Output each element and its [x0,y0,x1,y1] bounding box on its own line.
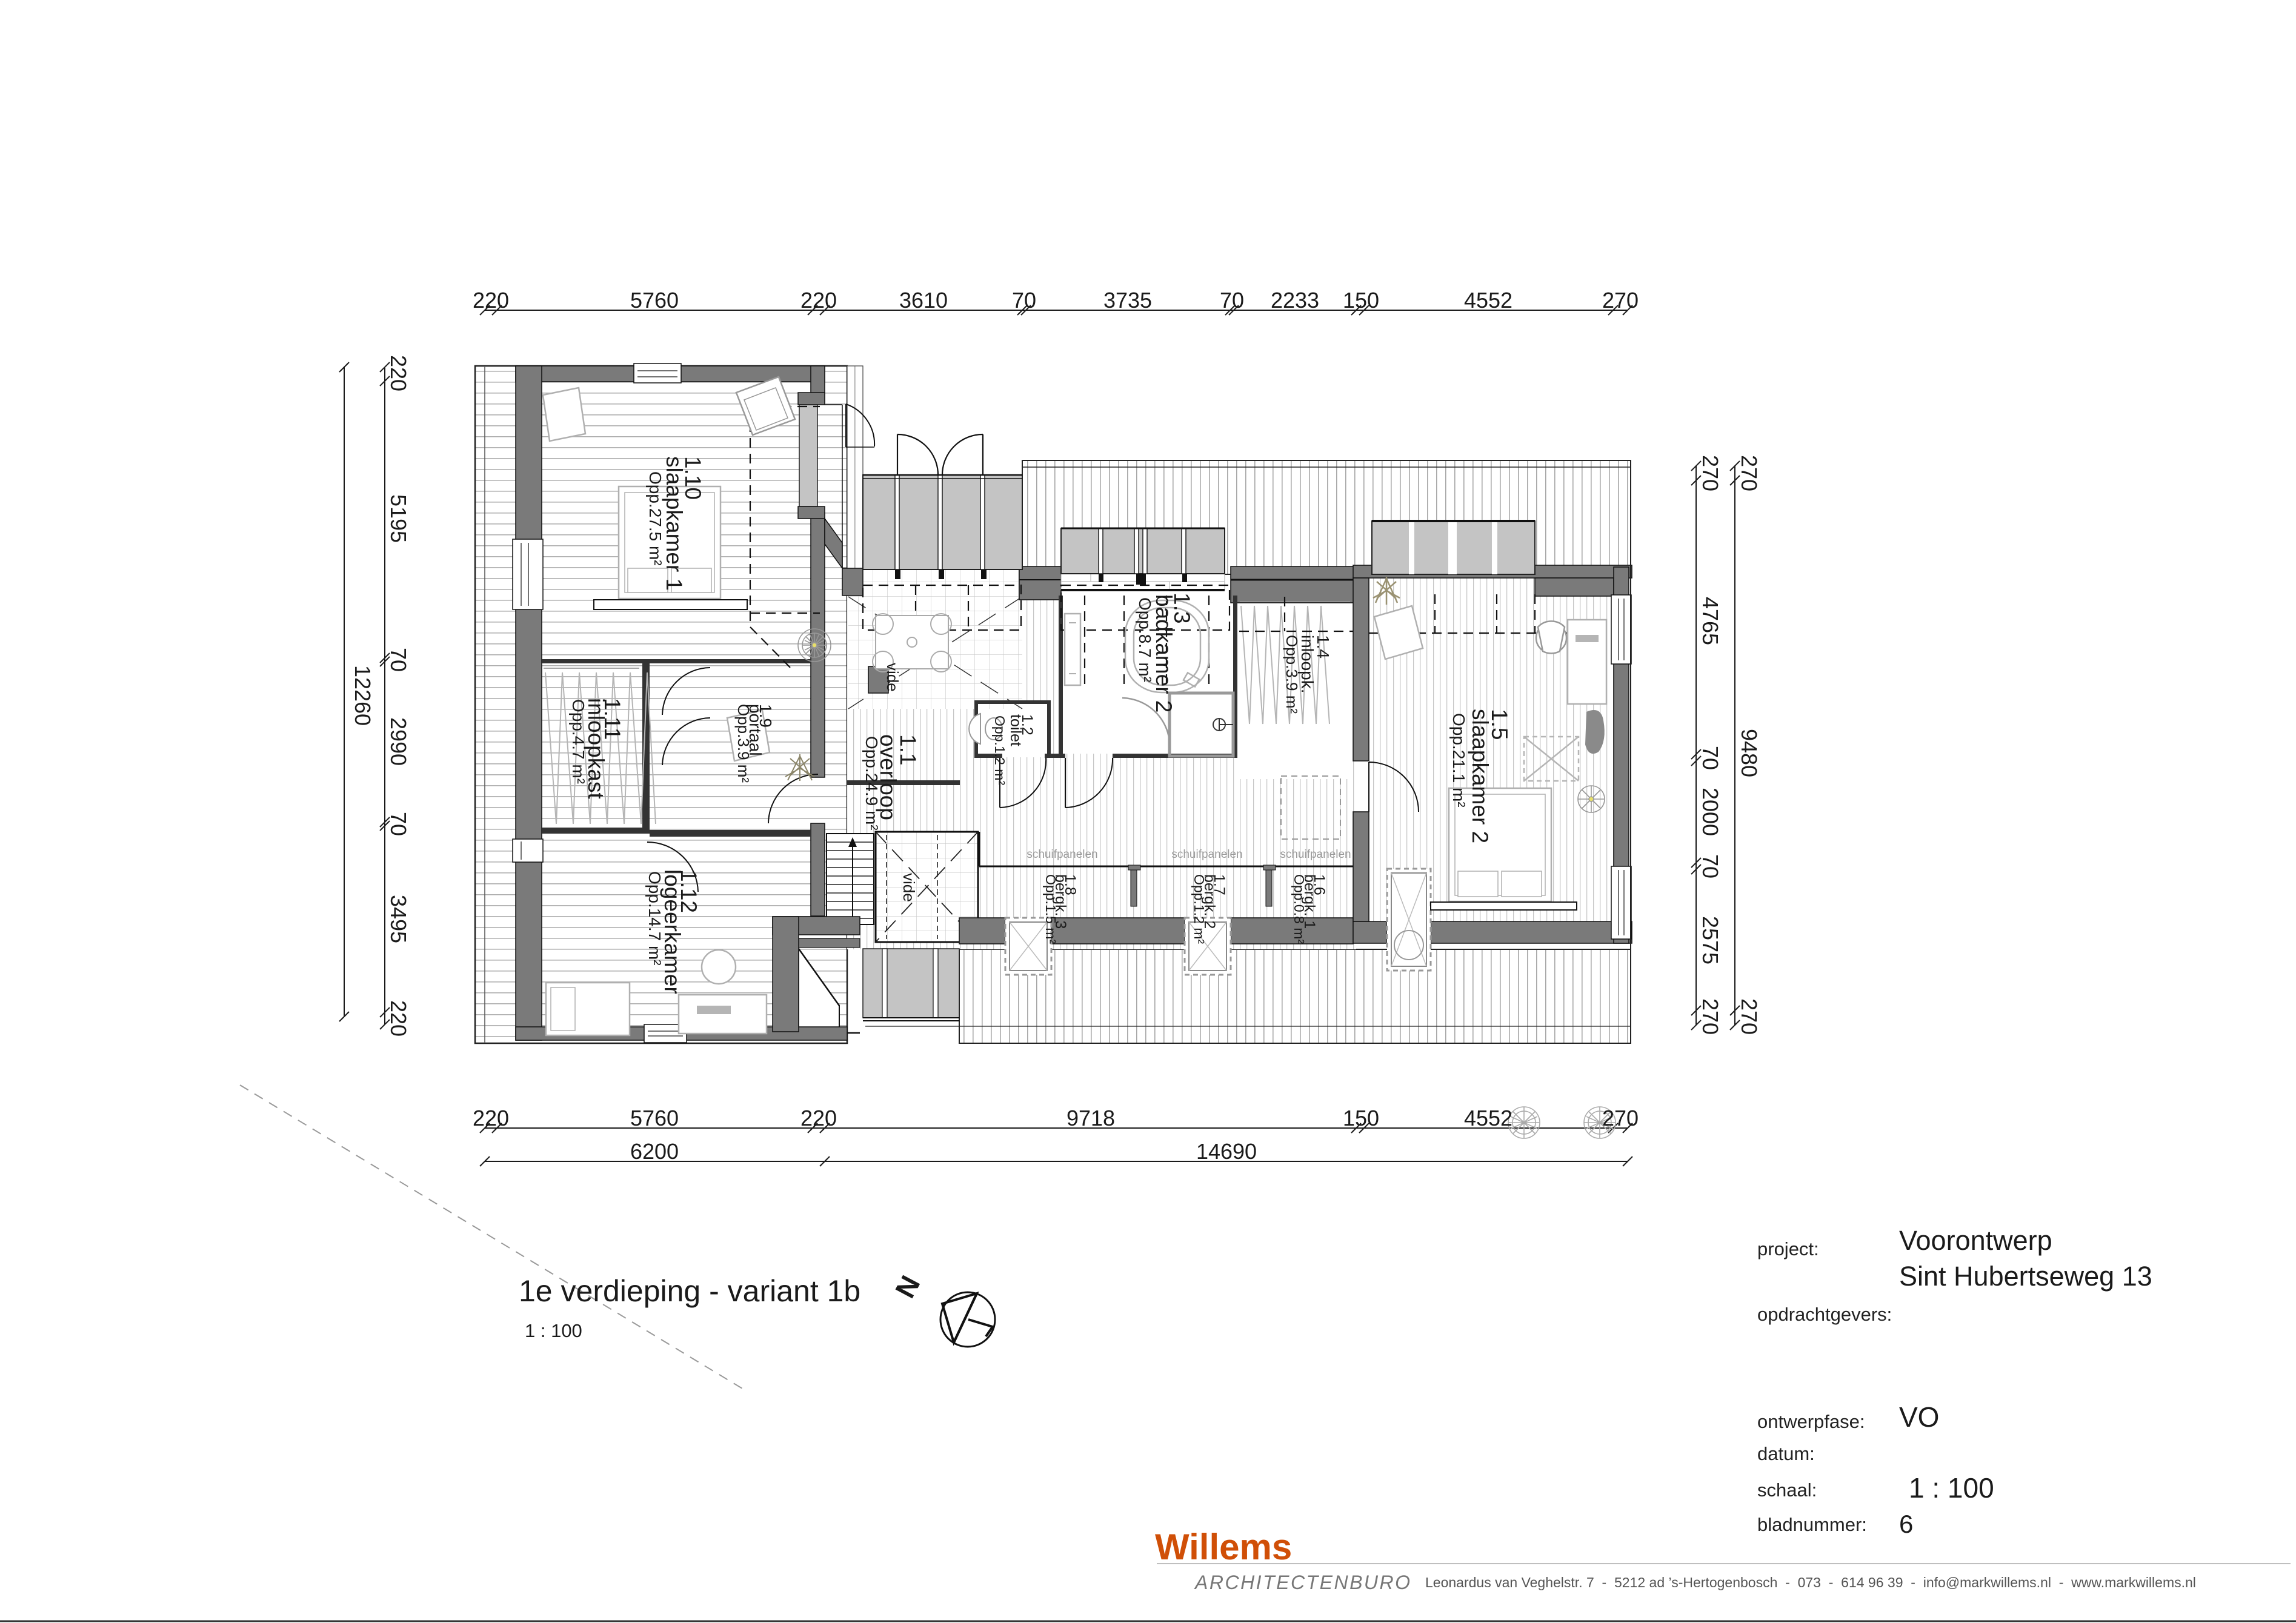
svg-text:Opp.27.5 m²: Opp.27.5 m² [646,471,665,566]
svg-text:9718: 9718 [1066,1106,1115,1130]
svg-text:VO: VO [1899,1401,1939,1433]
svg-text:70: 70 [1012,288,1036,313]
svg-text:1 : 100: 1 : 100 [525,1320,582,1341]
svg-text:Opp.0.8 m²: Opp.0.8 m² [1291,874,1307,944]
svg-text:3495: 3495 [386,895,411,943]
svg-text:14690: 14690 [1196,1139,1257,1164]
svg-text:Opp.3.9 m²: Opp.3.9 m² [1283,635,1301,714]
svg-text:12260: 12260 [350,665,375,726]
svg-text:slaapkamer 2: slaapkamer 2 [1468,709,1492,843]
svg-text:4765: 4765 [1698,597,1723,645]
svg-text:70: 70 [1698,746,1723,770]
svg-text:toilet: toilet [1007,714,1024,746]
svg-text:150: 150 [1343,1106,1379,1130]
svg-text:schuifpanelen: schuifpanelen [1280,848,1351,861]
svg-text:9480: 9480 [1737,729,1762,777]
svg-text:3735: 3735 [1103,288,1152,313]
svg-text:270: 270 [1698,998,1723,1035]
svg-text:70: 70 [1698,854,1723,878]
svg-text:Opp.3.9 m²: Opp.3.9 m² [734,704,753,783]
svg-text:3610: 3610 [899,288,948,313]
svg-text:badkamer 2: badkamer 2 [1151,594,1176,712]
svg-text:270: 270 [1737,998,1762,1035]
svg-text:5760: 5760 [630,288,679,313]
svg-text:6: 6 [1899,1510,1913,1538]
svg-text:1e verdieping - variant 1b: 1e verdieping - variant 1b [519,1274,860,1308]
svg-text:5195: 5195 [386,494,411,543]
svg-text:Opp.1.2 m²: Opp.1.2 m² [1191,874,1207,944]
svg-text:Voorontwerp: Voorontwerp [1899,1225,2052,1256]
svg-text:6200: 6200 [630,1139,679,1164]
svg-text:ARCHITECTENBURO: ARCHITECTENBURO [1194,1572,1412,1593]
svg-text:Sint Hubertseweg 13: Sint Hubertseweg 13 [1899,1261,2152,1292]
svg-text:schaal:: schaal: [1757,1479,1817,1501]
svg-text:4552: 4552 [1464,1106,1512,1130]
svg-text:Opp.24.9 m²: Opp.24.9 m² [862,736,881,831]
svg-text:bladnummer:: bladnummer: [1757,1514,1867,1535]
svg-text:Opp.1.5 m²: Opp.1.5 m² [1043,874,1059,944]
svg-text:slaapkamer 1: slaapkamer 1 [662,456,687,591]
svg-text:270: 270 [1698,455,1723,491]
svg-text:2990: 2990 [386,717,411,766]
svg-text:Willems: Willems [1155,1527,1292,1567]
svg-text:2233: 2233 [1271,288,1319,313]
svg-text:220: 220 [473,1106,509,1130]
svg-text:270: 270 [1602,1106,1639,1130]
svg-text:vide: vide [900,873,918,902]
svg-text:220: 220 [386,355,411,391]
svg-text:Opp.4.7 m²: Opp.4.7 m² [569,699,588,784]
svg-text:150: 150 [1343,288,1379,313]
svg-text:220: 220 [800,288,837,313]
svg-text:4552: 4552 [1464,288,1512,313]
svg-text:2575: 2575 [1698,916,1723,964]
svg-text:Leonardus van Veghelstr. 7 -: Leonardus van Veghelstr. 7 - 5212 ad ’s-… [1425,1575,2196,1590]
svg-text:schuifpanelen: schuifpanelen [1027,848,1097,861]
svg-text:2000: 2000 [1698,788,1723,836]
svg-text:220: 220 [473,288,509,313]
svg-text:270: 270 [1737,455,1762,491]
svg-text:Opp.21.1 m²: Opp.21.1 m² [1449,713,1468,808]
svg-text:70: 70 [386,648,411,672]
svg-text:Opp.14.7 m²: Opp.14.7 m² [645,871,664,966]
svg-text:schuifpanelen: schuifpanelen [1171,848,1242,861]
svg-text:opdrachtgevers:: opdrachtgevers: [1757,1304,1892,1325]
svg-text:Opp.8.7 m²: Opp.8.7 m² [1136,597,1154,682]
svg-text:70: 70 [1220,288,1244,313]
svg-text:220: 220 [800,1106,837,1130]
svg-text:Opp.1.2 m²: Opp.1.2 m² [992,715,1008,785]
svg-text:datum:: datum: [1757,1443,1815,1464]
svg-text:project:: project: [1757,1238,1819,1260]
svg-text:5760: 5760 [630,1106,679,1130]
svg-text:220: 220 [386,1000,411,1037]
svg-text:ontwerpfase:: ontwerpfase: [1757,1411,1865,1432]
svg-text:70: 70 [386,812,411,836]
svg-text:270: 270 [1602,288,1639,313]
svg-text:vide: vide [883,663,902,692]
svg-text:1 : 100: 1 : 100 [1909,1472,1994,1504]
